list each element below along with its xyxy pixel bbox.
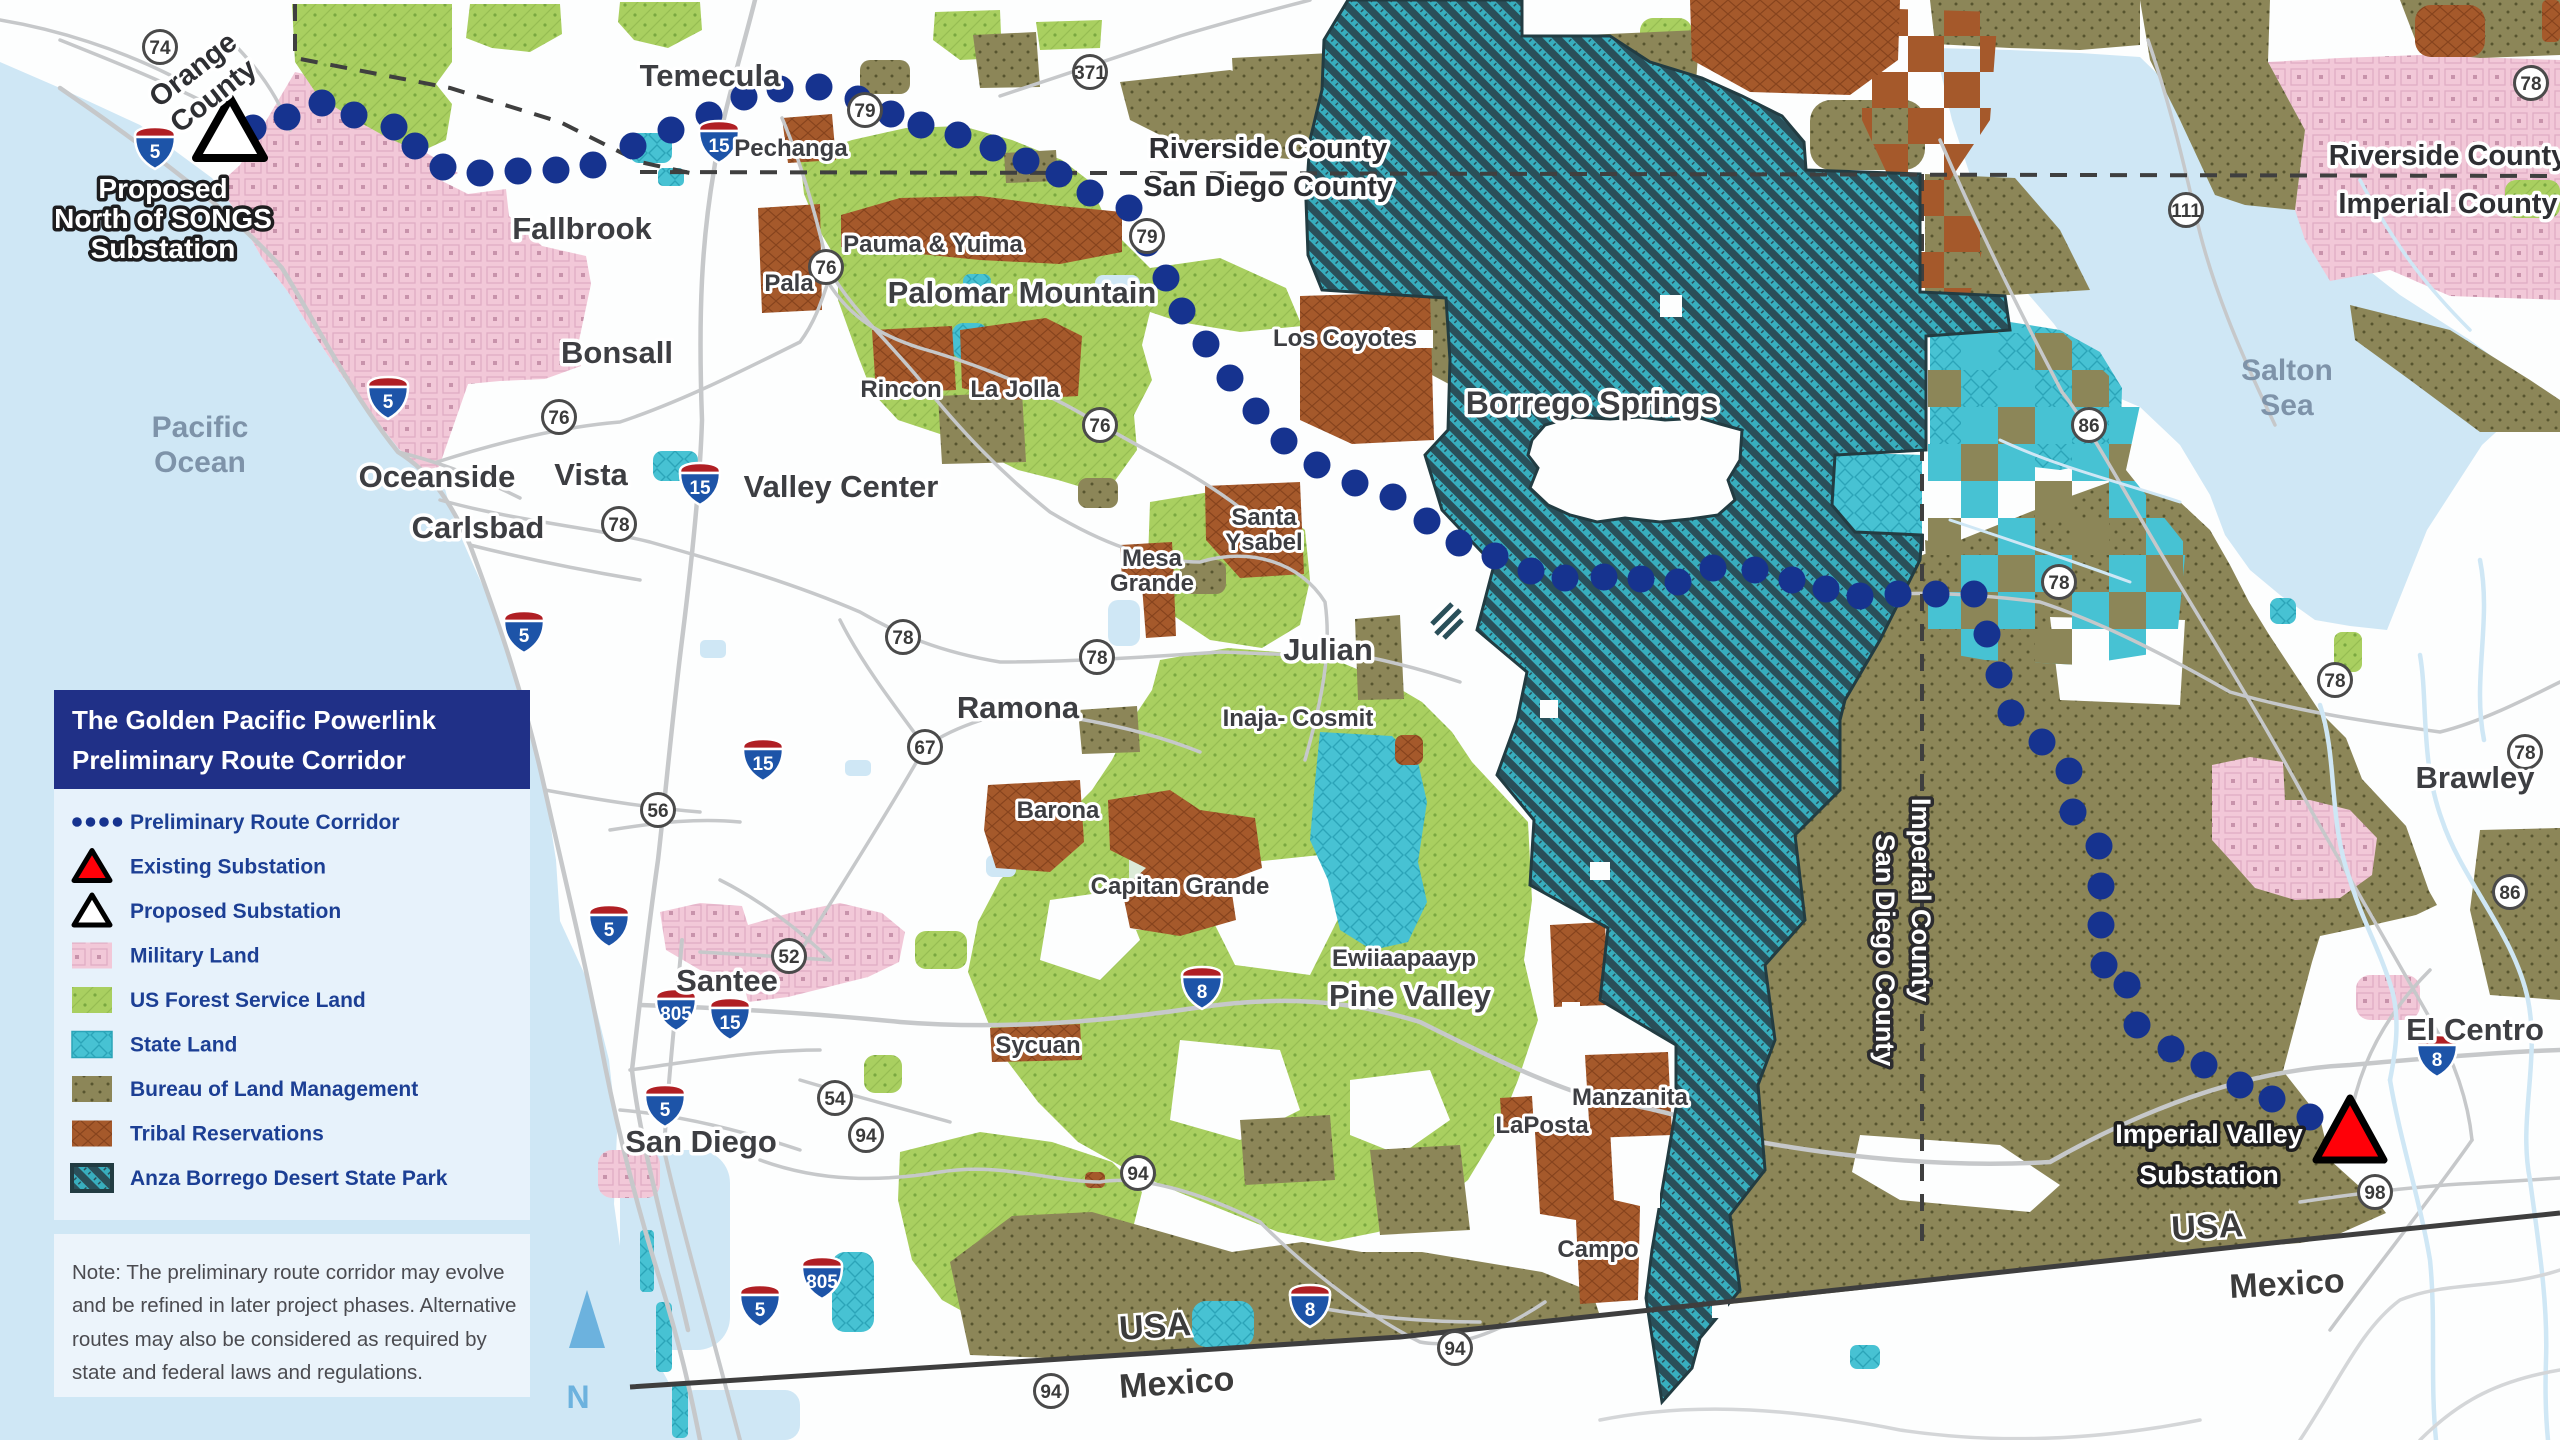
svg-text:Existing Substation: Existing Substation bbox=[130, 856, 326, 879]
svg-text:routes may also be considered: routes may also be considered as require… bbox=[72, 1328, 488, 1351]
svg-text:15: 15 bbox=[719, 1013, 741, 1034]
svg-text:Preliminary Route Corridor: Preliminary Route Corridor bbox=[72, 745, 406, 775]
svg-text:Mesa: Mesa bbox=[1122, 545, 1183, 572]
svg-text:USA: USA bbox=[1118, 1305, 1192, 1348]
svg-text:5: 5 bbox=[755, 1300, 766, 1321]
svg-text:8: 8 bbox=[1305, 1300, 1316, 1321]
svg-text:Vista: Vista bbox=[554, 457, 628, 492]
svg-text:Salton: Salton bbox=[2241, 354, 2333, 387]
svg-text:94: 94 bbox=[1040, 1382, 1062, 1403]
svg-text:Rincon: Rincon bbox=[860, 376, 941, 403]
svg-text:15: 15 bbox=[752, 754, 774, 775]
svg-text:Ysabel: Ysabel bbox=[1225, 529, 1302, 556]
svg-text:78: 78 bbox=[2048, 573, 2069, 594]
svg-text:San Diego: San Diego bbox=[625, 1124, 777, 1159]
svg-text:LaPosta: LaPosta bbox=[1495, 1112, 1589, 1139]
svg-text:El Centro: El Centro bbox=[2406, 1012, 2544, 1047]
svg-text:111: 111 bbox=[2171, 201, 2201, 222]
svg-text:76: 76 bbox=[1089, 416, 1110, 437]
svg-text:78: 78 bbox=[608, 515, 629, 536]
svg-text:76: 76 bbox=[548, 408, 569, 429]
svg-text:Riverside County: Riverside County bbox=[1149, 133, 1388, 165]
svg-text:78: 78 bbox=[2324, 671, 2345, 692]
svg-text:US Forest Service Land: US Forest Service Land bbox=[130, 989, 366, 1012]
svg-text:Brawley: Brawley bbox=[2416, 760, 2536, 795]
svg-text:Palomar Mountain: Palomar Mountain bbox=[888, 275, 1157, 310]
svg-text:79: 79 bbox=[854, 101, 875, 122]
svg-text:Bureau of Land Management: Bureau of Land Management bbox=[130, 1078, 418, 1101]
svg-text:8: 8 bbox=[1197, 982, 1208, 1003]
svg-text:Ewiiaapaayp: Ewiiaapaayp bbox=[1332, 945, 1476, 972]
svg-text:94: 94 bbox=[1127, 1164, 1149, 1185]
svg-text:Barona: Barona bbox=[1017, 797, 1100, 824]
svg-text:Capitan Grande: Capitan Grande bbox=[1091, 873, 1270, 900]
svg-text:Preliminary Route Corridor: Preliminary Route Corridor bbox=[130, 811, 400, 834]
svg-text:79: 79 bbox=[1136, 227, 1157, 248]
svg-text:8: 8 bbox=[2432, 1050, 2443, 1071]
svg-text:Ocean: Ocean bbox=[154, 446, 246, 479]
svg-text:Sycuan: Sycuan bbox=[995, 1032, 1080, 1059]
svg-text:5: 5 bbox=[150, 142, 161, 163]
svg-text:Substation: Substation bbox=[91, 233, 236, 264]
svg-text:Tribal Reservations: Tribal Reservations bbox=[130, 1123, 324, 1146]
svg-text:Julian: Julian bbox=[1283, 632, 1373, 667]
svg-text:Grande: Grande bbox=[1110, 570, 1194, 597]
svg-text:North of SONGS: North of SONGS bbox=[54, 203, 272, 234]
svg-text:Pine Valley: Pine Valley bbox=[1329, 978, 1492, 1013]
svg-text:Military Land: Military Land bbox=[130, 945, 260, 968]
svg-text:67: 67 bbox=[914, 738, 935, 759]
svg-text:Substation: Substation bbox=[2139, 1160, 2279, 1190]
svg-text:805: 805 bbox=[806, 1272, 838, 1293]
svg-text:San Diego County: San Diego County bbox=[1870, 834, 1900, 1067]
svg-text:Proposed: Proposed bbox=[98, 173, 227, 204]
svg-text:15: 15 bbox=[708, 136, 730, 157]
svg-text:805: 805 bbox=[660, 1004, 692, 1025]
svg-text:La Jolla: La Jolla bbox=[970, 376, 1060, 403]
svg-text:Mexico: Mexico bbox=[1118, 1360, 1236, 1406]
svg-text:State Land: State Land bbox=[130, 1034, 237, 1057]
svg-text:Note: The preliminary route co: Note: The preliminary route corridor may… bbox=[72, 1261, 505, 1284]
svg-text:Oceanside: Oceanside bbox=[359, 459, 516, 494]
svg-text:Riverside County: Riverside County bbox=[2329, 140, 2560, 172]
svg-text:Bonsall: Bonsall bbox=[561, 335, 673, 370]
svg-text:94: 94 bbox=[1444, 1339, 1466, 1360]
svg-text:USA: USA bbox=[2170, 1206, 2244, 1248]
svg-text:N: N bbox=[566, 1379, 589, 1415]
svg-text:Manzanita: Manzanita bbox=[1572, 1084, 1689, 1111]
svg-text:94: 94 bbox=[855, 1126, 877, 1147]
svg-text:Santee: Santee bbox=[676, 963, 778, 998]
svg-text:78: 78 bbox=[892, 628, 913, 649]
svg-text:Sea: Sea bbox=[2260, 389, 2314, 422]
svg-text:74: 74 bbox=[149, 38, 171, 59]
svg-text:Imperial County: Imperial County bbox=[2338, 188, 2557, 220]
svg-text:Los Coyotes: Los Coyotes bbox=[1273, 325, 1417, 352]
svg-text:78: 78 bbox=[1086, 648, 1107, 669]
svg-text:371: 371 bbox=[1074, 63, 1106, 84]
svg-text:5: 5 bbox=[519, 626, 530, 647]
svg-text:5: 5 bbox=[383, 392, 394, 413]
svg-text:5: 5 bbox=[604, 920, 615, 941]
svg-text:Pechanga: Pechanga bbox=[734, 135, 848, 162]
svg-text:Imperial County: Imperial County bbox=[1906, 798, 1936, 1002]
svg-text:and be refined in later projec: and be refined in later project phases. … bbox=[72, 1294, 516, 1317]
svg-text:Fallbrook: Fallbrook bbox=[512, 211, 652, 246]
svg-text:Pauma & Yuima: Pauma & Yuima bbox=[843, 231, 1023, 258]
svg-text:state and federal laws and reg: state and federal laws and regulations. bbox=[72, 1361, 423, 1384]
svg-text:Proposed Substation: Proposed Substation bbox=[130, 900, 341, 923]
svg-text:5: 5 bbox=[660, 1100, 671, 1121]
svg-text:15: 15 bbox=[689, 478, 711, 499]
svg-text:Mexico: Mexico bbox=[2228, 1262, 2345, 1306]
svg-text:Campo: Campo bbox=[1557, 1236, 1638, 1263]
svg-text:Valley Center: Valley Center bbox=[744, 469, 939, 504]
svg-text:Temecula: Temecula bbox=[640, 58, 781, 93]
svg-text:The Golden Pacific Powerlink: The Golden Pacific Powerlink bbox=[72, 705, 437, 735]
svg-text:98: 98 bbox=[2364, 1183, 2385, 1204]
svg-text:56: 56 bbox=[647, 801, 668, 822]
svg-text:San Diego County: San Diego County bbox=[1143, 171, 1393, 203]
svg-text:Anza Borrego Desert State Park: Anza Borrego Desert State Park bbox=[130, 1167, 448, 1190]
svg-text:86: 86 bbox=[2078, 416, 2099, 437]
svg-text:78: 78 bbox=[2520, 74, 2541, 95]
svg-text:Ramona: Ramona bbox=[957, 690, 1080, 725]
svg-text:Carlsbad: Carlsbad bbox=[412, 510, 545, 545]
svg-text:Imperial Valley: Imperial Valley bbox=[2115, 1119, 2303, 1149]
svg-text:86: 86 bbox=[2499, 883, 2520, 904]
svg-text:76: 76 bbox=[815, 258, 836, 279]
svg-text:Pacific: Pacific bbox=[152, 411, 249, 444]
svg-text:52: 52 bbox=[778, 947, 799, 968]
svg-text:Inaja- Cosmit: Inaja- Cosmit bbox=[1223, 705, 1374, 732]
svg-text:54: 54 bbox=[824, 1089, 846, 1110]
svg-text:Borrego Springs: Borrego Springs bbox=[1466, 385, 1718, 421]
svg-text:Pala: Pala bbox=[764, 270, 814, 297]
svg-text:Santa: Santa bbox=[1231, 504, 1297, 531]
